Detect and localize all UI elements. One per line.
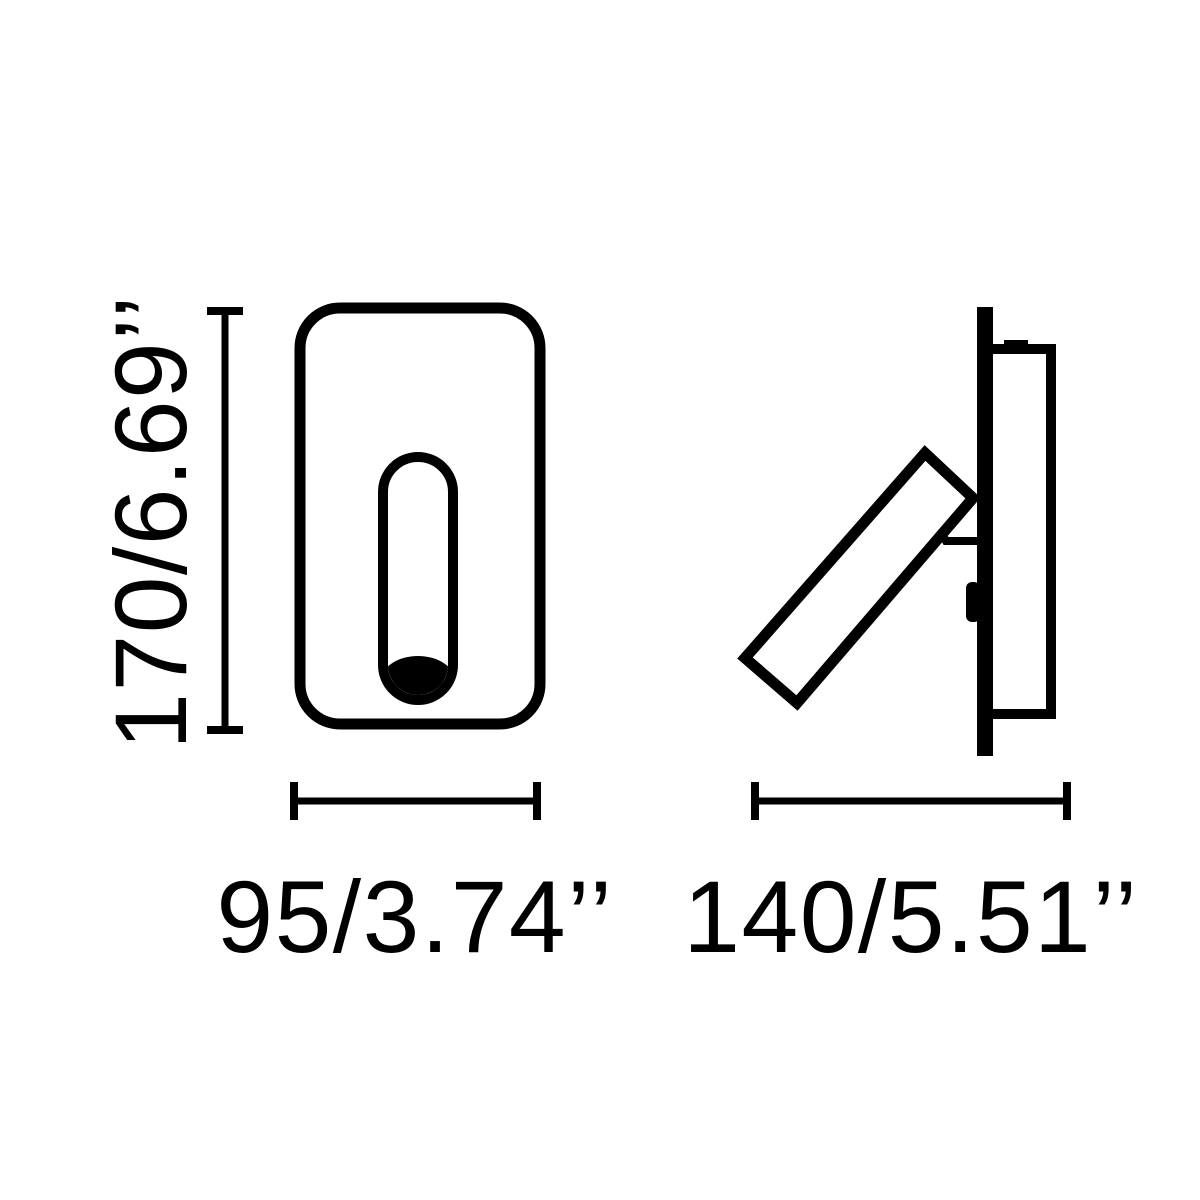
side-reading-arm — [745, 453, 973, 703]
depth-dimension-label: 140/5.51’’ — [683, 860, 1139, 974]
width-dimension-label: 95/3.74’’ — [216, 860, 613, 974]
height-dimension-label: 170/6.69’’ — [94, 294, 208, 750]
width-dimension: 95/3.74’’ — [216, 782, 613, 974]
technical-drawing: 170/6.69’’ 95/3.74’’ 140/5.51’’ — [0, 0, 1200, 1200]
side-wall-plate-edge — [977, 307, 993, 756]
depth-dimension: 140/5.51’’ — [683, 782, 1139, 974]
side-recessed-box-outline — [985, 349, 1051, 714]
side-box-tab — [1004, 340, 1028, 352]
technical-drawing-page: 170/6.69’’ 95/3.74’’ 140/5.51’’ — [0, 0, 1200, 1200]
side-view — [745, 307, 1051, 756]
front-view — [300, 308, 540, 724]
height-dimension: 170/6.69’’ — [94, 294, 243, 750]
